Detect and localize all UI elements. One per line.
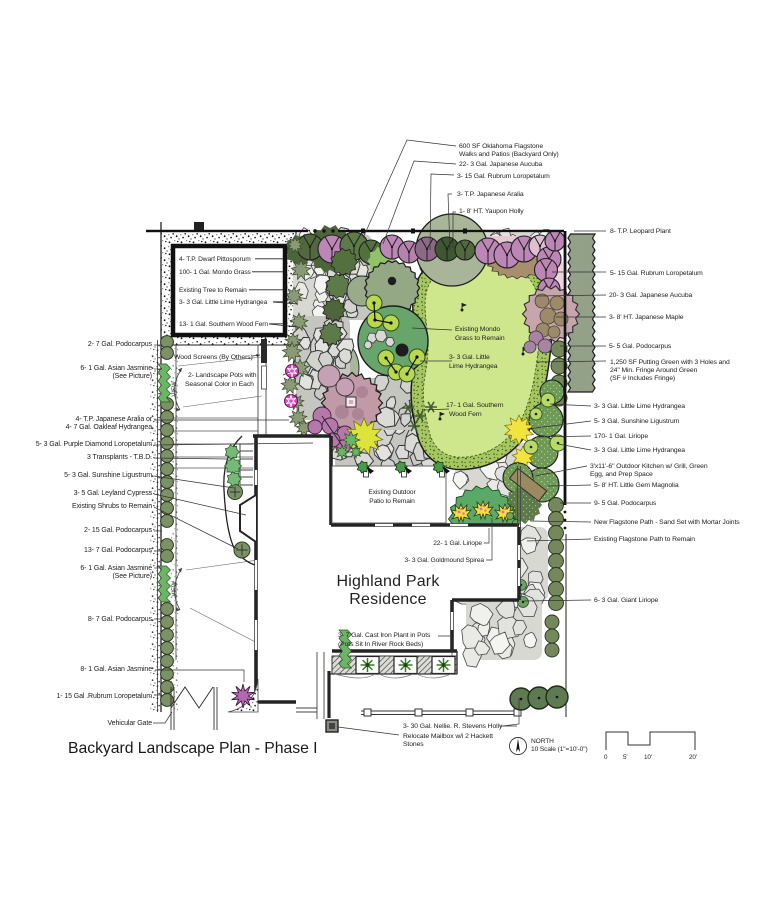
svg-text:Seasonal Color in Each: Seasonal Color in Each (185, 381, 254, 388)
svg-text:NORTH: NORTH (531, 738, 554, 745)
svg-text:22- 3 Gal. Japanese Aucuba: 22- 3 Gal. Japanese Aucuba (459, 161, 542, 168)
svg-text:5- 3 Gal. Sunshine Ligustrum: 5- 3 Gal. Sunshine Ligustrum (64, 472, 152, 479)
svg-text:5- 15 Gal. Rubrum Loropetalum: 5- 15 Gal. Rubrum Loropetalum (610, 270, 703, 277)
svg-text:Existing Shrubs to Remain: Existing Shrubs to Remain (72, 503, 152, 510)
svg-text:New Flagstone Path - Sand Set: New Flagstone Path - Sand Set with Morta… (594, 519, 740, 526)
svg-text:(See Picture): (See Picture) (112, 373, 152, 380)
svg-text:600 SF Oklahoma Flagstone: 600 SF Oklahoma Flagstone (459, 143, 543, 150)
svg-text:3- 15 Gal. Rubrum Loropetalum: 3- 15 Gal. Rubrum Loropetalum (457, 173, 550, 180)
svg-text:100- 1 Gal. Mondo Grass: 100- 1 Gal. Mondo Grass (179, 269, 252, 276)
svg-text:6- 3 Gal. Giant Liriope: 6- 3 Gal. Giant Liriope (594, 597, 659, 604)
svg-text:5- 8' HT. Little Gem Magnolia: 5- 8' HT. Little Gem Magnolia (594, 482, 679, 489)
svg-text:4- T.P. Dwarf Pittosporum: 4- T.P. Dwarf Pittosporum (179, 256, 251, 263)
svg-text:8- T.P. Leopard Plant: 8- T.P. Leopard Plant (610, 228, 671, 235)
svg-text:3- 3 Gal. Goldmound Spirea: 3- 3 Gal. Goldmound Spirea (404, 557, 484, 564)
svg-text:10': 10' (644, 754, 652, 761)
svg-text:3- 7 Gal. Cast Iron Plant in P: 3- 7 Gal. Cast Iron Plant in Pots (338, 632, 431, 639)
svg-text:Walks and Patios (Backyard Onl: Walks and Patios (Backyard Only) (459, 151, 559, 158)
svg-text:3- 3 Gal. Little Lime Hydrange: 3- 3 Gal. Little Lime Hydrangea (179, 299, 268, 306)
svg-text:(Pots Sit In River Rock Beds): (Pots Sit In River Rock Beds) (338, 641, 423, 648)
svg-text:3'x11'-6" Outdoor Kitchen w/ G: 3'x11'-6" Outdoor Kitchen w/ Grill, Gree… (590, 463, 708, 470)
svg-text:Vehicular Gate: Vehicular Gate (107, 720, 152, 727)
svg-text:VIEW: VIEW (172, 581, 178, 597)
svg-text:3- 3 Gal. Little Lime Hydrange: 3- 3 Gal. Little Lime Hydrangea (594, 403, 685, 410)
svg-text:Wood Fern: Wood Fern (449, 411, 482, 418)
svg-text:6- 1 Gal. Asian Jasmine: 6- 1 Gal. Asian Jasmine (80, 365, 152, 372)
svg-text:170- 1 Gal. Liriope: 170- 1 Gal. Liriope (594, 433, 648, 440)
svg-text:VIEW: VIEW (172, 381, 178, 397)
svg-text:6- 1 Gal. Asian Jasmine: 6- 1 Gal. Asian Jasmine (80, 565, 152, 572)
svg-text:5': 5' (623, 754, 628, 761)
svg-text:2- 15 Gal. Podocarpus: 2- 15 Gal. Podocarpus (84, 527, 153, 534)
svg-text:Wood Screens (By Others): Wood Screens (By Others) (174, 354, 253, 361)
svg-text:4- T.P. Japanese Aralia or: 4- T.P. Japanese Aralia or (75, 416, 152, 423)
svg-text:3- 3 Gal. Little Lime Hydrange: 3- 3 Gal. Little Lime Hydrangea (594, 447, 685, 454)
svg-text:13- 1 Gal. Southern Wood Fern: 13- 1 Gal. Southern Wood Fern (179, 321, 268, 328)
svg-text:Existing Outdoor: Existing Outdoor (368, 489, 416, 496)
svg-text:Existing Flagstone Path to Rem: Existing Flagstone Path to Remain (594, 536, 695, 543)
svg-text:3- T.P. Japanese Aralia: 3- T.P. Japanese Aralia (457, 191, 524, 198)
svg-text:20': 20' (689, 754, 697, 761)
svg-text:2- Landscape Pots with: 2- Landscape Pots with (188, 372, 257, 379)
svg-text:9- 5 Gal. Podocarpus: 9- 5 Gal. Podocarpus (594, 500, 657, 507)
svg-text:Grass to Remain: Grass to Remain (455, 335, 505, 342)
svg-text:Relocate Mailbox w/i 2 Hackett: Relocate Mailbox w/i 2 Hackett (403, 733, 493, 740)
svg-text:Highland Park: Highland Park (336, 573, 440, 590)
svg-text:1- 8' HT. Yaupon Holly: 1- 8' HT. Yaupon Holly (459, 208, 524, 215)
svg-text:Existing Mondo: Existing Mondo (455, 326, 500, 333)
svg-text:Lime Hydrangea: Lime Hydrangea (449, 363, 498, 370)
svg-text:13- 7 Gal. Podocarpus: 13- 7 Gal. Podocarpus (84, 547, 153, 554)
svg-text:(See Picture): (See Picture) (112, 573, 152, 580)
svg-text:10 Scale (1"=10'-0"): 10 Scale (1"=10'-0") (531, 746, 588, 753)
svg-text:Existing Tree to Remain: Existing Tree to Remain (179, 287, 247, 294)
svg-text:3- 30 Gal. Nellie. R. Stevens: 3- 30 Gal. Nellie. R. Stevens Holly (403, 723, 503, 730)
svg-text:Backyard Landscape Plan - Phas: Backyard Landscape Plan - Phase I (68, 740, 318, 757)
svg-text:5- 3 Gal. Purple Diamond Lorop: 5- 3 Gal. Purple Diamond Loropetalum (36, 441, 153, 448)
svg-text:2- 7 Gal. Podocarpus: 2- 7 Gal. Podocarpus (88, 341, 153, 348)
svg-text:(SF # Includes Fringe): (SF # Includes Fringe) (610, 375, 675, 382)
svg-text:0: 0 (604, 754, 608, 761)
svg-text:Residence: Residence (349, 591, 426, 608)
svg-text:Stones: Stones (403, 741, 424, 748)
svg-text:20- 3 Gal. Japanese Aucuba: 20- 3 Gal. Japanese Aucuba (609, 292, 692, 299)
svg-text:8- 7 Gal. Podocarpus: 8- 7 Gal. Podocarpus (88, 616, 153, 623)
svg-text:3- 5 Gal. Leyland Cypress: 3- 5 Gal. Leyland Cypress (74, 490, 153, 497)
svg-text:22- 1 Gal. Liriope: 22- 1 Gal. Liriope (433, 540, 482, 547)
svg-text:Egg, and Prep Space: Egg, and Prep Space (590, 471, 653, 478)
svg-text:24" Min. Fringe Around Green: 24" Min. Fringe Around Green (610, 367, 698, 374)
svg-text:1,250 SF Putting Green with 3: 1,250 SF Putting Green with 3 Holes and (610, 359, 730, 366)
svg-text:5- 3 Gal. Sunshine Ligustrum: 5- 3 Gal. Sunshine Ligustrum (594, 418, 680, 425)
svg-text:5- 5 Gal. Podocarpus: 5- 5 Gal. Podocarpus (609, 343, 672, 350)
svg-text:3- 8' HT. Japanese Maple: 3- 8' HT. Japanese Maple (609, 314, 684, 321)
svg-text:17- 1 Gal. Southern: 17- 1 Gal. Southern (446, 402, 504, 409)
svg-text:3- 3 Gal. Little: 3- 3 Gal. Little (449, 354, 490, 361)
svg-text:8- 1 Gal. Asian Jasmine: 8- 1 Gal. Asian Jasmine (80, 666, 152, 673)
svg-text:3 Transplants - T.B.D.: 3 Transplants - T.B.D. (87, 454, 152, 461)
svg-text:4- 7 Gal. Oakleaf Hydrangea: 4- 7 Gal. Oakleaf Hydrangea (66, 424, 153, 431)
svg-text:1- 15 Gal .Rubrum Loropetalum: 1- 15 Gal .Rubrum Loropetalum (56, 693, 152, 700)
svg-text:Patio to Remain: Patio to Remain (369, 498, 415, 505)
